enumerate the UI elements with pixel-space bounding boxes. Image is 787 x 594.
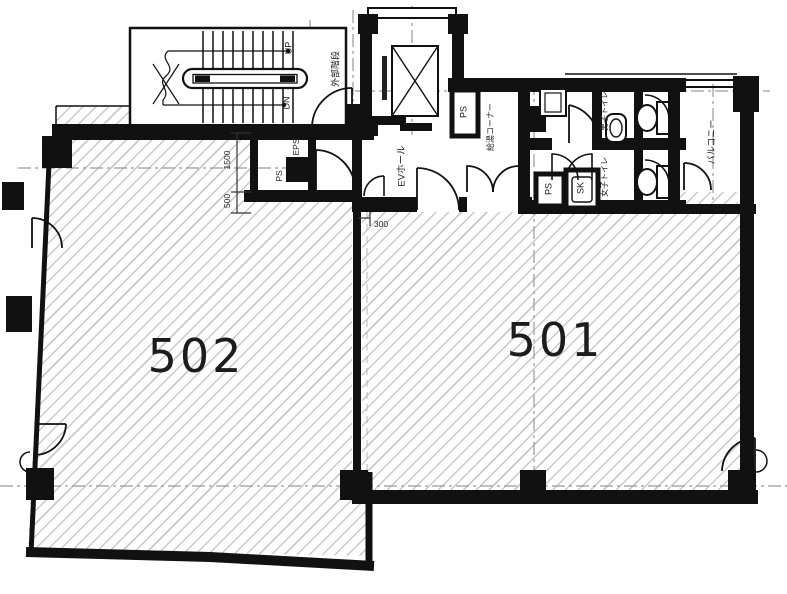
room-label-kitchenette: 給湯コーナー [487, 103, 495, 151]
column [6, 296, 32, 332]
room-label-balcony: バルコニー [708, 120, 717, 165]
entry-door-arc-left-lower [20, 424, 66, 472]
room-label-ps-lower: PS [545, 183, 554, 195]
unit-label-502: 502 [148, 333, 245, 379]
column [340, 470, 368, 500]
hall-door-arc [417, 168, 459, 210]
corridor-door-arc-small [364, 176, 384, 196]
column [733, 76, 759, 112]
room-label-womens-toilet: 女子トイレ [601, 157, 609, 197]
dim-label-1500: 1500 [223, 151, 232, 170]
column [520, 470, 546, 498]
toilet-mens [637, 102, 669, 134]
elevator-rail [382, 56, 387, 100]
toilet-block [448, 78, 686, 214]
dim-label-500: 500 [223, 194, 232, 208]
room-label-mens-toilet: 男子トイレ [601, 91, 609, 131]
urinal [606, 114, 626, 142]
external-staircase [56, 28, 352, 126]
unit-501-walls [340, 76, 767, 504]
floor-plan: 502 501 外部階段 UP DN EVホール 給湯コーナー PS EPS P… [0, 0, 787, 594]
column [728, 470, 756, 500]
eps-shaft-room [244, 132, 358, 202]
room-label-ps-eps: PS [275, 170, 284, 181]
stair-dn-label: DN [283, 97, 292, 110]
balcony-door-arc [684, 163, 711, 190]
dim-label-300: 300 [374, 220, 388, 229]
room-label-ps-shaft: PS [460, 106, 469, 118]
column [2, 182, 24, 210]
column [42, 136, 72, 168]
stair-up-label: UP [285, 42, 294, 55]
shaft-fill [286, 157, 310, 182]
double-door-arc [467, 166, 519, 192]
room-label-sk: SK [577, 182, 586, 194]
column [26, 468, 54, 500]
unit-label-501: 501 [507, 317, 604, 363]
room-label-elevator-hall: EVホール [397, 145, 407, 186]
elevator-door-panel [400, 123, 432, 131]
room-label-external-stairs: 外部階段 [332, 51, 341, 87]
room-label-eps: EPS [292, 138, 301, 155]
eps-door-arc [316, 150, 355, 190]
plan-linework [0, 0, 787, 594]
